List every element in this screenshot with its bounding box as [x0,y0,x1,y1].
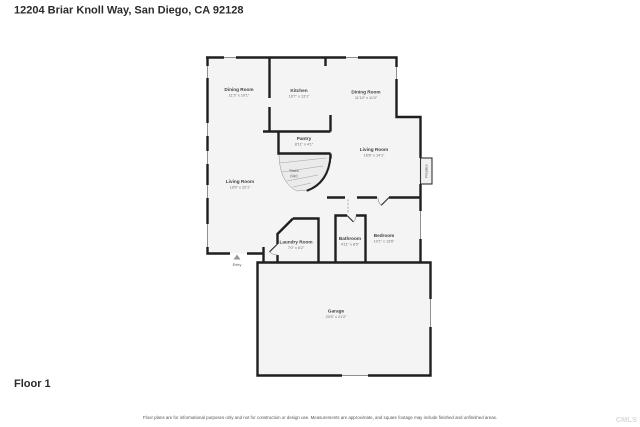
room-name-living-left: Living Room [226,179,254,184]
room-dims-pantry: 8'11" x 4'1" [295,143,314,147]
room-dims-garage: 20'5" x 21'2" [326,315,347,319]
room-dims-kitchen: 16'7" x 13'1" [289,95,310,99]
room-name-dining-left: Dining Room [224,87,253,92]
room-name-garage: Garage [328,309,345,314]
watermark-logo: CMLS [616,415,637,424]
room-dims-living-left: 19'9" x 22'1" [230,186,251,190]
room-name-living-right: Living Room [360,147,388,152]
room-dims-laundry: 7'0" x 6'2" [288,246,305,250]
room-name-bathroom: Bathroom [339,236,361,241]
room-dims-bedroom: 10'1" x 13'6" [374,240,395,244]
floor-label: Floor 1 [14,378,51,390]
room-dims-dining-left: 11'3" x 10'1" [229,94,250,98]
room-dims-dining-right: 11'10" x 11'0" [355,96,378,100]
stairs-label-up: (Up) [290,174,298,178]
fireplace: Fireplace [421,158,433,184]
stairs-label: Stairs [289,169,299,173]
disclaimer-text: Floor plans are for informational purpos… [143,415,497,420]
room-dims-living-right: 16'8" x 14'1" [364,154,385,158]
page-title: 12204 Briar Knoll Way, San Diego, CA 921… [14,5,243,17]
floor-plan-canvas: 12204 Briar Knoll Way, San Diego, CA 921… [0,0,640,427]
room-name-kitchen: Kitchen [290,88,307,93]
room-name-laundry: Laundry Room [279,240,312,245]
room-name-bedroom: Bedroom [374,233,395,238]
room-name-dining-right: Dining Room [351,90,380,95]
fireplace-label: Fireplace [425,164,429,178]
entry-label: Entry [233,263,242,267]
room-name-pantry: Pantry [297,136,312,141]
room-dims-bathroom: 4'11" x 8'5" [341,243,360,247]
